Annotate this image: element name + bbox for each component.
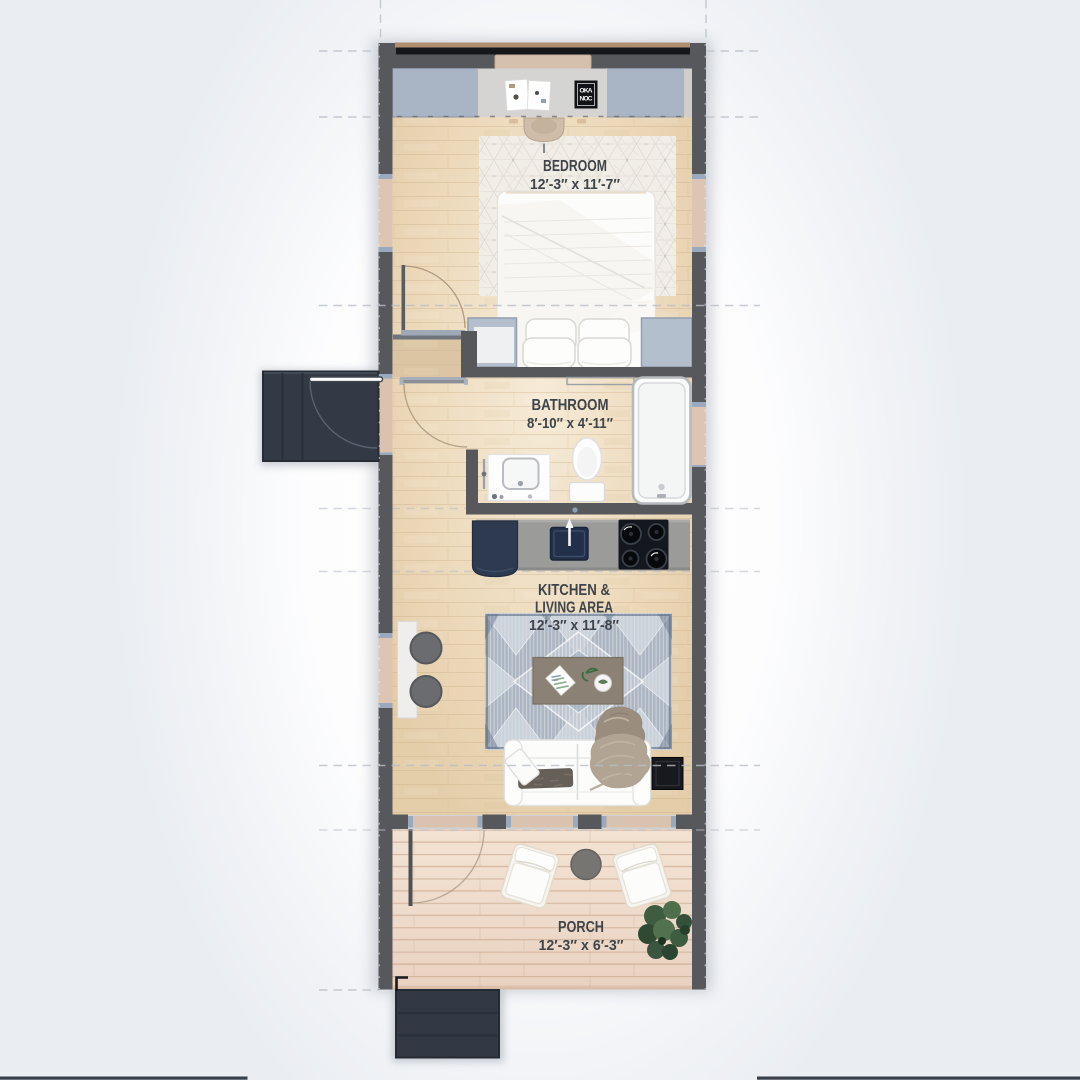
- svg-text:PORCH: PORCH: [558, 919, 604, 936]
- svg-text:LIVING AREA: LIVING AREA: [535, 600, 613, 617]
- svg-text:12′-3″ x 11′-8″: 12′-3″ x 11′-8″: [529, 617, 619, 634]
- svg-text:12′-3″ x 6′-3″: 12′-3″ x 6′-3″: [539, 937, 624, 954]
- svg-text:BATHROOM: BATHROOM: [532, 397, 609, 414]
- svg-text:OKA: OKA: [580, 88, 593, 95]
- svg-text:NOC: NOC: [580, 96, 593, 103]
- svg-text:8′-10″ x 4′-11″: 8′-10″ x 4′-11″: [527, 415, 613, 432]
- svg-text:KITCHEN &: KITCHEN &: [538, 582, 610, 599]
- svg-text:BEDROOM: BEDROOM: [543, 158, 607, 175]
